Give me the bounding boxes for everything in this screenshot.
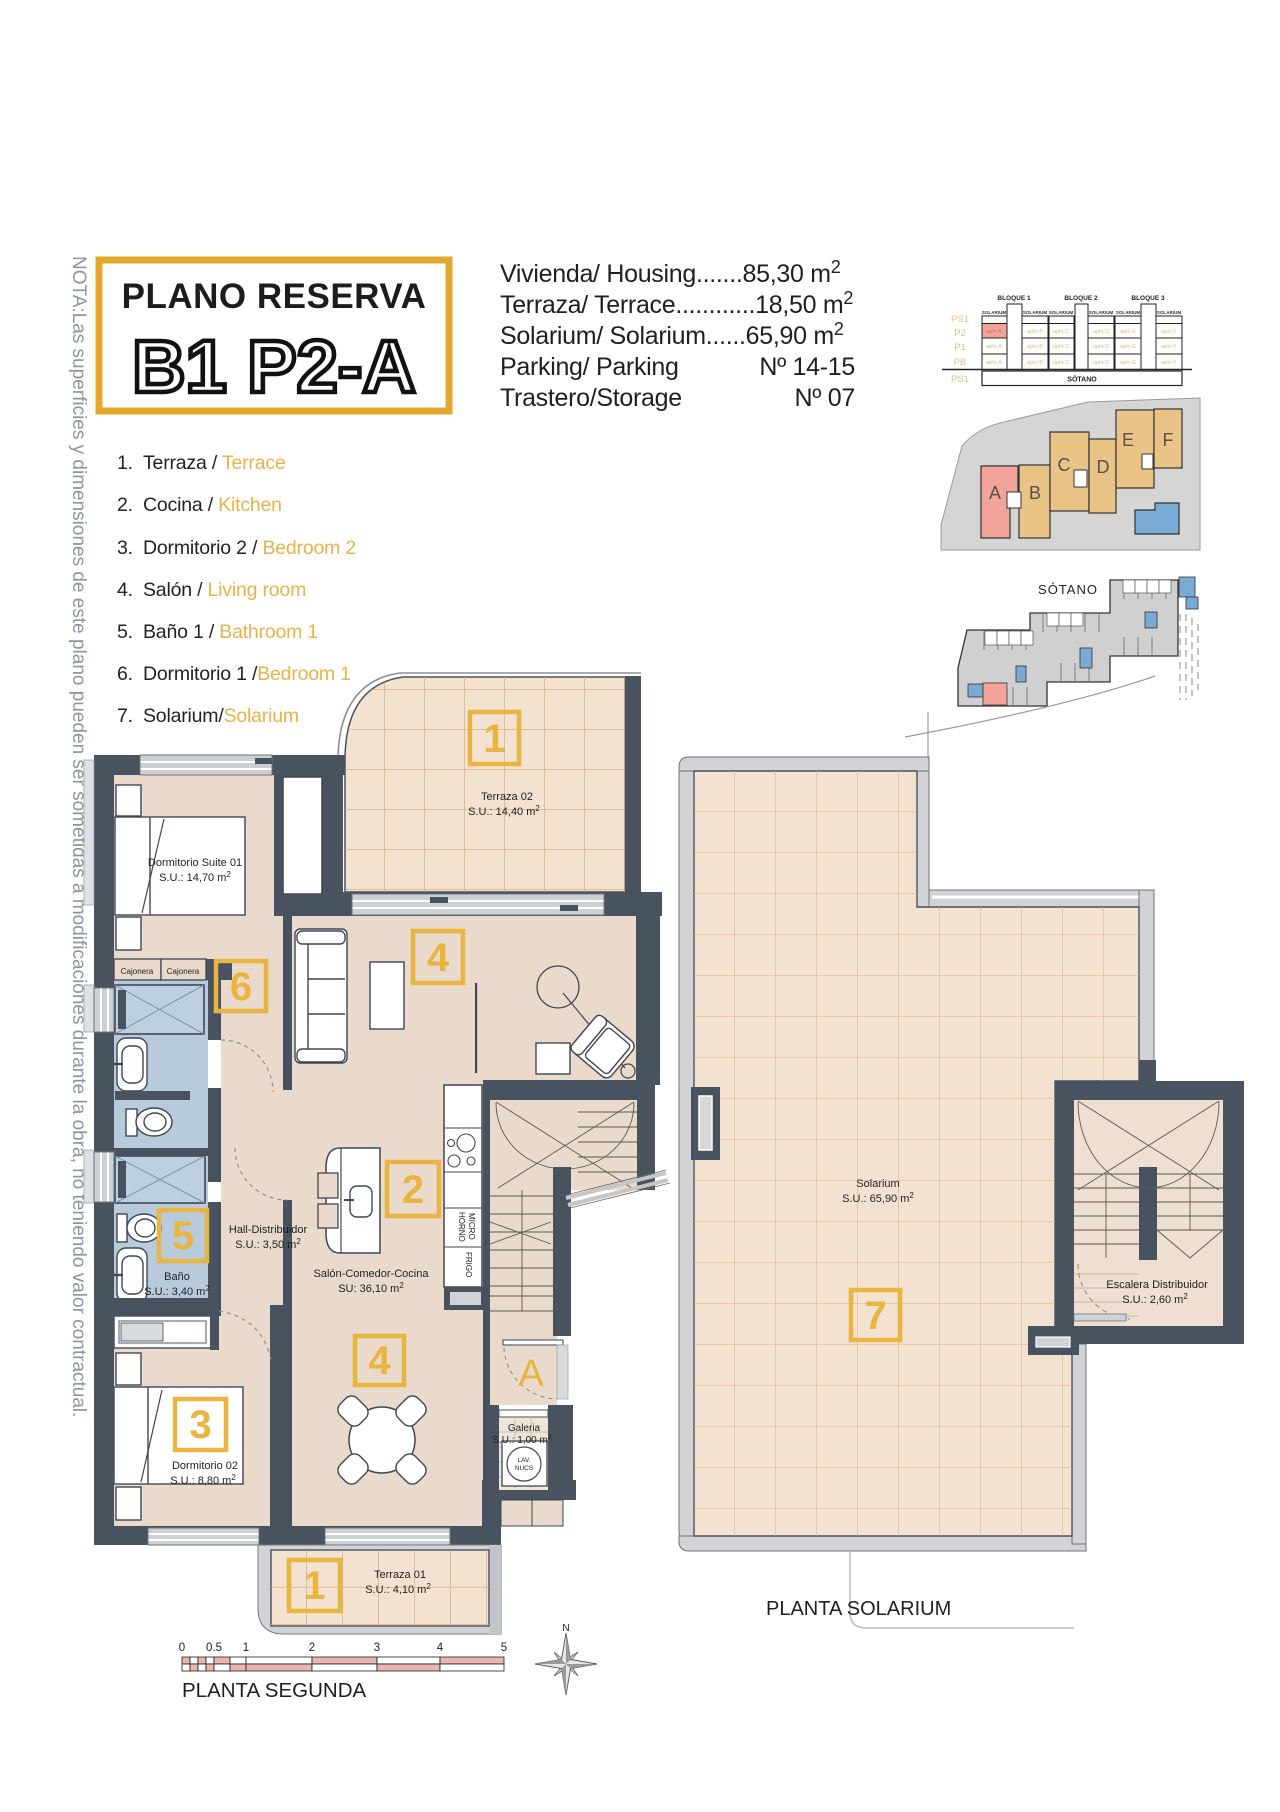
svg-text:apto C: apto C: [1053, 329, 1069, 335]
svg-text:SOLARIUM: SOLARIUM: [1089, 310, 1114, 315]
svg-text:Baño: Baño: [164, 1271, 190, 1283]
svg-text:Cocina / Kitchen: Cocina / Kitchen: [143, 494, 282, 516]
svg-text:apto B: apto B: [1027, 360, 1043, 366]
svg-text:S.U.: 65,90 m2: S.U.: 65,90 m2: [842, 1191, 914, 1205]
svg-text:PLANO RESERVA: PLANO RESERVA: [122, 277, 427, 316]
svg-text:PS1: PS1: [951, 314, 969, 325]
svg-text:S.U.: 2,60 m2: S.U.: 2,60 m2: [1122, 1292, 1188, 1306]
svg-text:1: 1: [483, 717, 505, 761]
svg-text:Terraza/ Terrace............18: Terraza/ Terrace............18,50 m2: [500, 288, 853, 319]
svg-text:3: 3: [374, 1642, 380, 1654]
svg-text:3: 3: [189, 1403, 211, 1447]
svg-text:NUCS: NUCS: [515, 1465, 534, 1472]
svg-text:apto F: apto F: [1161, 329, 1177, 335]
svg-text:S.U.: 1,00 m2: S.U.: 1,00 m2: [492, 1434, 552, 1446]
svg-text:Dormitorio 2 / Bedroom 2: Dormitorio 2 / Bedroom 2: [143, 537, 356, 559]
svg-text:2: 2: [402, 1168, 424, 1212]
svg-text:SU: 36,10 m2: SU: 36,10 m2: [338, 1281, 404, 1295]
svg-text:apto E: apto E: [1120, 329, 1136, 335]
svg-text:S.U.: 3,50 m2: S.U.: 3,50 m2: [235, 1237, 301, 1251]
svg-text:Salón / Living room: Salón / Living room: [143, 579, 306, 601]
svg-text:4.: 4.: [117, 579, 133, 601]
svg-text:S.U.: 4,10 m2: S.U.: 4,10 m2: [365, 1582, 431, 1596]
svg-text:Terraza 02: Terraza 02: [481, 791, 533, 803]
svg-text:apto F: apto F: [1161, 344, 1177, 350]
svg-text:apto C: apto C: [1053, 344, 1069, 350]
svg-text:Solarium/Solarium: Solarium/Solarium: [143, 705, 299, 727]
svg-text:SÓTANO: SÓTANO: [1067, 375, 1097, 384]
svg-text:S.U.: 14,70 m2: S.U.: 14,70 m2: [159, 870, 231, 884]
svg-text:Solarium/ Solarium......65,90: Solarium/ Solarium......65,90 m2: [500, 319, 844, 350]
svg-text:Dormitorio Suite 01: Dormitorio Suite 01: [148, 857, 242, 869]
svg-text:BLOQUE 3: BLOQUE 3: [1131, 295, 1165, 302]
svg-text:5: 5: [501, 1642, 507, 1654]
svg-text:Dormitorio 02: Dormitorio 02: [172, 1460, 238, 1472]
svg-text:BLOQUE 2: BLOQUE 2: [1064, 295, 1098, 302]
svg-text:D: D: [1097, 457, 1110, 477]
svg-text:SOLARIUM: SOLARIUM: [1116, 310, 1141, 315]
svg-text:P2: P2: [954, 328, 966, 339]
svg-text:PLANTA SOLARIUM: PLANTA SOLARIUM: [766, 1598, 951, 1620]
svg-text:BLOQUE 1: BLOQUE 1: [997, 295, 1031, 302]
svg-text:apto E: apto E: [1120, 344, 1136, 350]
svg-text:4: 4: [427, 936, 450, 980]
svg-text:A: A: [989, 483, 1001, 503]
svg-text:3.: 3.: [117, 537, 133, 559]
svg-text:5: 5: [172, 1214, 194, 1258]
svg-text:0: 0: [179, 1642, 185, 1654]
svg-text:Solarium: Solarium: [856, 1178, 899, 1190]
svg-text:Hall-Distribuidor: Hall-Distribuidor: [229, 1224, 308, 1236]
svg-text:SOLARIUM: SOLARIUM: [1049, 310, 1074, 315]
svg-text:Cajonera: Cajonera: [167, 967, 200, 976]
svg-text:apto A: apto A: [986, 344, 1002, 350]
svg-text:SÓTANO: SÓTANO: [1038, 582, 1098, 597]
svg-text:Terraza / Terrace: Terraza / Terrace: [143, 452, 286, 474]
svg-text:5.: 5.: [117, 621, 133, 643]
svg-text:Dormitorio 1 /Bedroom 1: Dormitorio 1 /Bedroom 1: [143, 663, 351, 685]
svg-text:P1: P1: [954, 342, 966, 353]
svg-text:6: 6: [230, 965, 252, 1009]
svg-text:1: 1: [243, 1642, 249, 1654]
svg-text:Trastero/Storage: Trastero/Storage: [500, 384, 682, 412]
svg-text:Parking/ Parking: Parking/ Parking: [500, 353, 679, 381]
svg-text:C: C: [1058, 455, 1071, 475]
svg-text:4: 4: [437, 1642, 444, 1654]
svg-text:1.: 1.: [117, 452, 133, 474]
svg-text:LAV.: LAV.: [517, 1457, 530, 1464]
svg-text:Baño 1 / Bathroom 1: Baño 1 / Bathroom 1: [143, 621, 318, 643]
svg-text:apto A: apto A: [986, 329, 1002, 335]
svg-text:Terraza 01: Terraza 01: [374, 1569, 426, 1581]
svg-text:A: A: [518, 1353, 544, 1395]
svg-text:apto D: apto D: [1093, 360, 1109, 366]
svg-text:SOLARIUM: SOLARIUM: [982, 310, 1007, 315]
svg-text:7: 7: [864, 1294, 886, 1338]
svg-text:HORNO: HORNO: [457, 1212, 466, 1242]
svg-text:PLANTA SEGUNDA: PLANTA SEGUNDA: [182, 1679, 366, 1702]
svg-text:apto D: apto D: [1093, 329, 1109, 335]
svg-text:Cajonera: Cajonera: [121, 967, 154, 976]
svg-text:1: 1: [303, 1564, 325, 1608]
svg-text:F: F: [1163, 430, 1174, 450]
svg-text:apto E: apto E: [1120, 360, 1136, 366]
svg-text:B: B: [1029, 483, 1041, 503]
svg-text:S.U.: 3,40 m2: S.U.: 3,40 m2: [144, 1284, 210, 1298]
svg-text:S.U.: 8,80 m2: S.U.: 8,80 m2: [170, 1473, 236, 1487]
svg-text:7.: 7.: [117, 705, 133, 727]
svg-text:apto B: apto B: [1027, 344, 1043, 350]
svg-text:apto F: apto F: [1161, 360, 1177, 366]
svg-text:E: E: [1122, 430, 1134, 450]
svg-text:0.5: 0.5: [206, 1642, 222, 1654]
svg-text:SOLARIUM: SOLARIUM: [1157, 310, 1182, 315]
svg-text:Nº 14-15: Nº 14-15: [759, 353, 855, 381]
svg-text:Vivienda/ Housing.......85,30: Vivienda/ Housing.......85,30 m2: [500, 257, 841, 288]
svg-text:B1 P2-A: B1 P2-A: [132, 325, 416, 408]
svg-text:PB: PB: [954, 357, 967, 368]
svg-text:Salón-Comedor-Cocina: Salón-Comedor-Cocina: [314, 1268, 430, 1280]
svg-text:Nº 07: Nº 07: [795, 384, 855, 412]
svg-text:2.: 2.: [117, 494, 133, 516]
svg-text:apto A: apto A: [986, 360, 1002, 366]
svg-text:PS1: PS1: [951, 374, 969, 385]
svg-text:4: 4: [368, 1339, 391, 1383]
svg-text:6.: 6.: [117, 663, 133, 685]
svg-text:MICRO: MICRO: [467, 1213, 476, 1240]
svg-text:apto B: apto B: [1027, 329, 1043, 335]
svg-text:2: 2: [309, 1642, 315, 1654]
svg-text:apto C: apto C: [1053, 360, 1069, 366]
svg-text:FRIGO: FRIGO: [464, 1252, 473, 1277]
svg-text:Escalera Distribuidor: Escalera Distribuidor: [1106, 1279, 1208, 1291]
svg-text:SOLARIUM: SOLARIUM: [1023, 310, 1048, 315]
svg-text:N: N: [562, 1623, 569, 1634]
svg-text:Galeria: Galeria: [508, 1423, 541, 1434]
svg-text:apto D: apto D: [1093, 344, 1109, 350]
svg-text:S.U.: 14,40 m2: S.U.: 14,40 m2: [468, 804, 540, 818]
